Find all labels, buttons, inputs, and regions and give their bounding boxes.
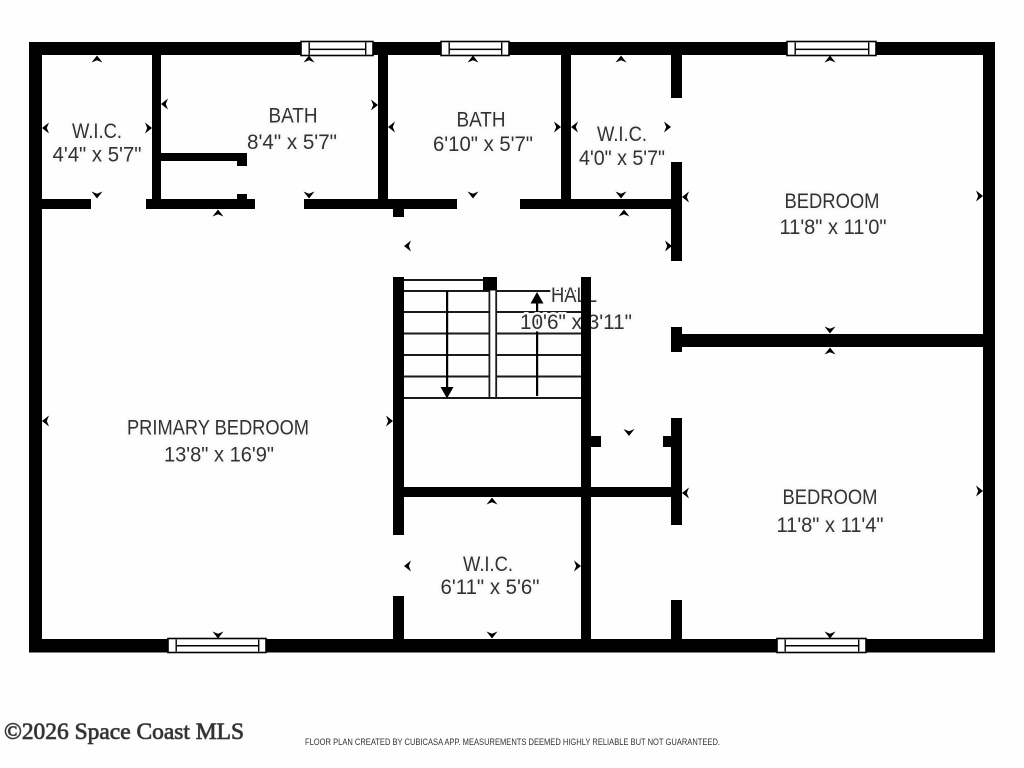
svg-text:W.I.C.: W.I.C. xyxy=(597,123,647,146)
svg-text:BATH: BATH xyxy=(457,109,506,132)
svg-text:6'11" x 5'6": 6'11" x 5'6" xyxy=(441,576,540,599)
svg-text:11'8" x 11'4": 11'8" x 11'4" xyxy=(777,514,884,537)
svg-text:W.I.C.: W.I.C. xyxy=(72,120,122,143)
svg-text:4'0" x 5'7": 4'0" x 5'7" xyxy=(579,147,665,170)
svg-text:13'8" x 16'9": 13'8" x 16'9" xyxy=(164,444,274,467)
svg-text:11'8" x 11'0": 11'8" x 11'0" xyxy=(780,216,887,239)
svg-text:8'4" x 5'7": 8'4" x 5'7" xyxy=(247,131,337,154)
svg-text:PRIMARY BEDROOM: PRIMARY BEDROOM xyxy=(127,417,309,440)
svg-text:10'6" x 3'11": 10'6" x 3'11" xyxy=(520,311,632,334)
svg-text:4'4" x 5'7": 4'4" x 5'7" xyxy=(53,144,142,167)
svg-text:6'10" x 5'7": 6'10" x 5'7" xyxy=(433,133,533,156)
svg-text:©2026 Space Coast MLS: ©2026 Space Coast MLS xyxy=(4,719,244,744)
svg-text:BEDROOM: BEDROOM xyxy=(783,486,878,509)
svg-text:FLOOR PLAN CREATED BY CUBICASA: FLOOR PLAN CREATED BY CUBICASA APP. MEAS… xyxy=(305,737,720,747)
svg-text:BEDROOM: BEDROOM xyxy=(785,190,880,213)
svg-text:BATH: BATH xyxy=(269,105,318,128)
svg-text:W.I.C.: W.I.C. xyxy=(463,553,513,576)
